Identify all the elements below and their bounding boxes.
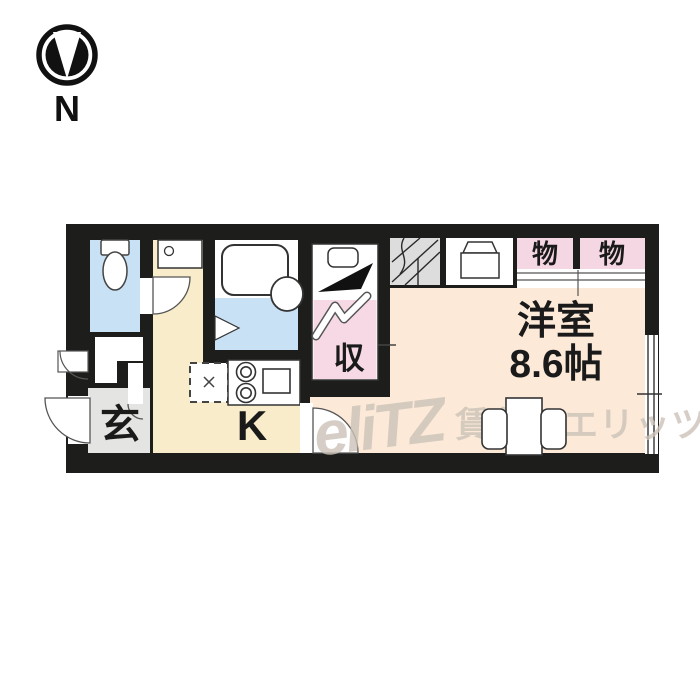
chair-left-icon [482, 409, 507, 449]
storage-left-label: 物 [532, 239, 558, 269]
washbasin-faucet-icon [165, 247, 174, 256]
entrance-door-arc-icon [45, 398, 90, 443]
partition-door-panel [128, 363, 143, 404]
chair-right-icon [541, 409, 566, 449]
toilet-icon [101, 240, 129, 290]
toilet-bowl [103, 252, 127, 290]
floorplan-page: N [0, 0, 700, 700]
closet-shelf-icon [328, 248, 358, 267]
storage-right-label: 物 [599, 239, 625, 269]
room-size-label: 8.6帖 [509, 343, 602, 386]
sliding-door-track [517, 269, 645, 288]
kitchen-label: K [237, 402, 267, 449]
north-label: N [54, 88, 80, 129]
table-icon [506, 398, 542, 455]
washbasin-icon [158, 240, 202, 268]
north-compass-icon [39, 27, 95, 83]
corridor-area [153, 240, 203, 453]
closet-label: 収 [334, 341, 365, 376]
toilet-door-panel [140, 278, 153, 314]
bath-washbasin-icon [271, 277, 303, 311]
floor-plan: N [0, 0, 700, 700]
entrance-label: 玄 [100, 403, 140, 447]
sink-icon [263, 369, 290, 393]
water-heater-icon [461, 242, 499, 278]
room-label: 洋室 [517, 300, 595, 343]
